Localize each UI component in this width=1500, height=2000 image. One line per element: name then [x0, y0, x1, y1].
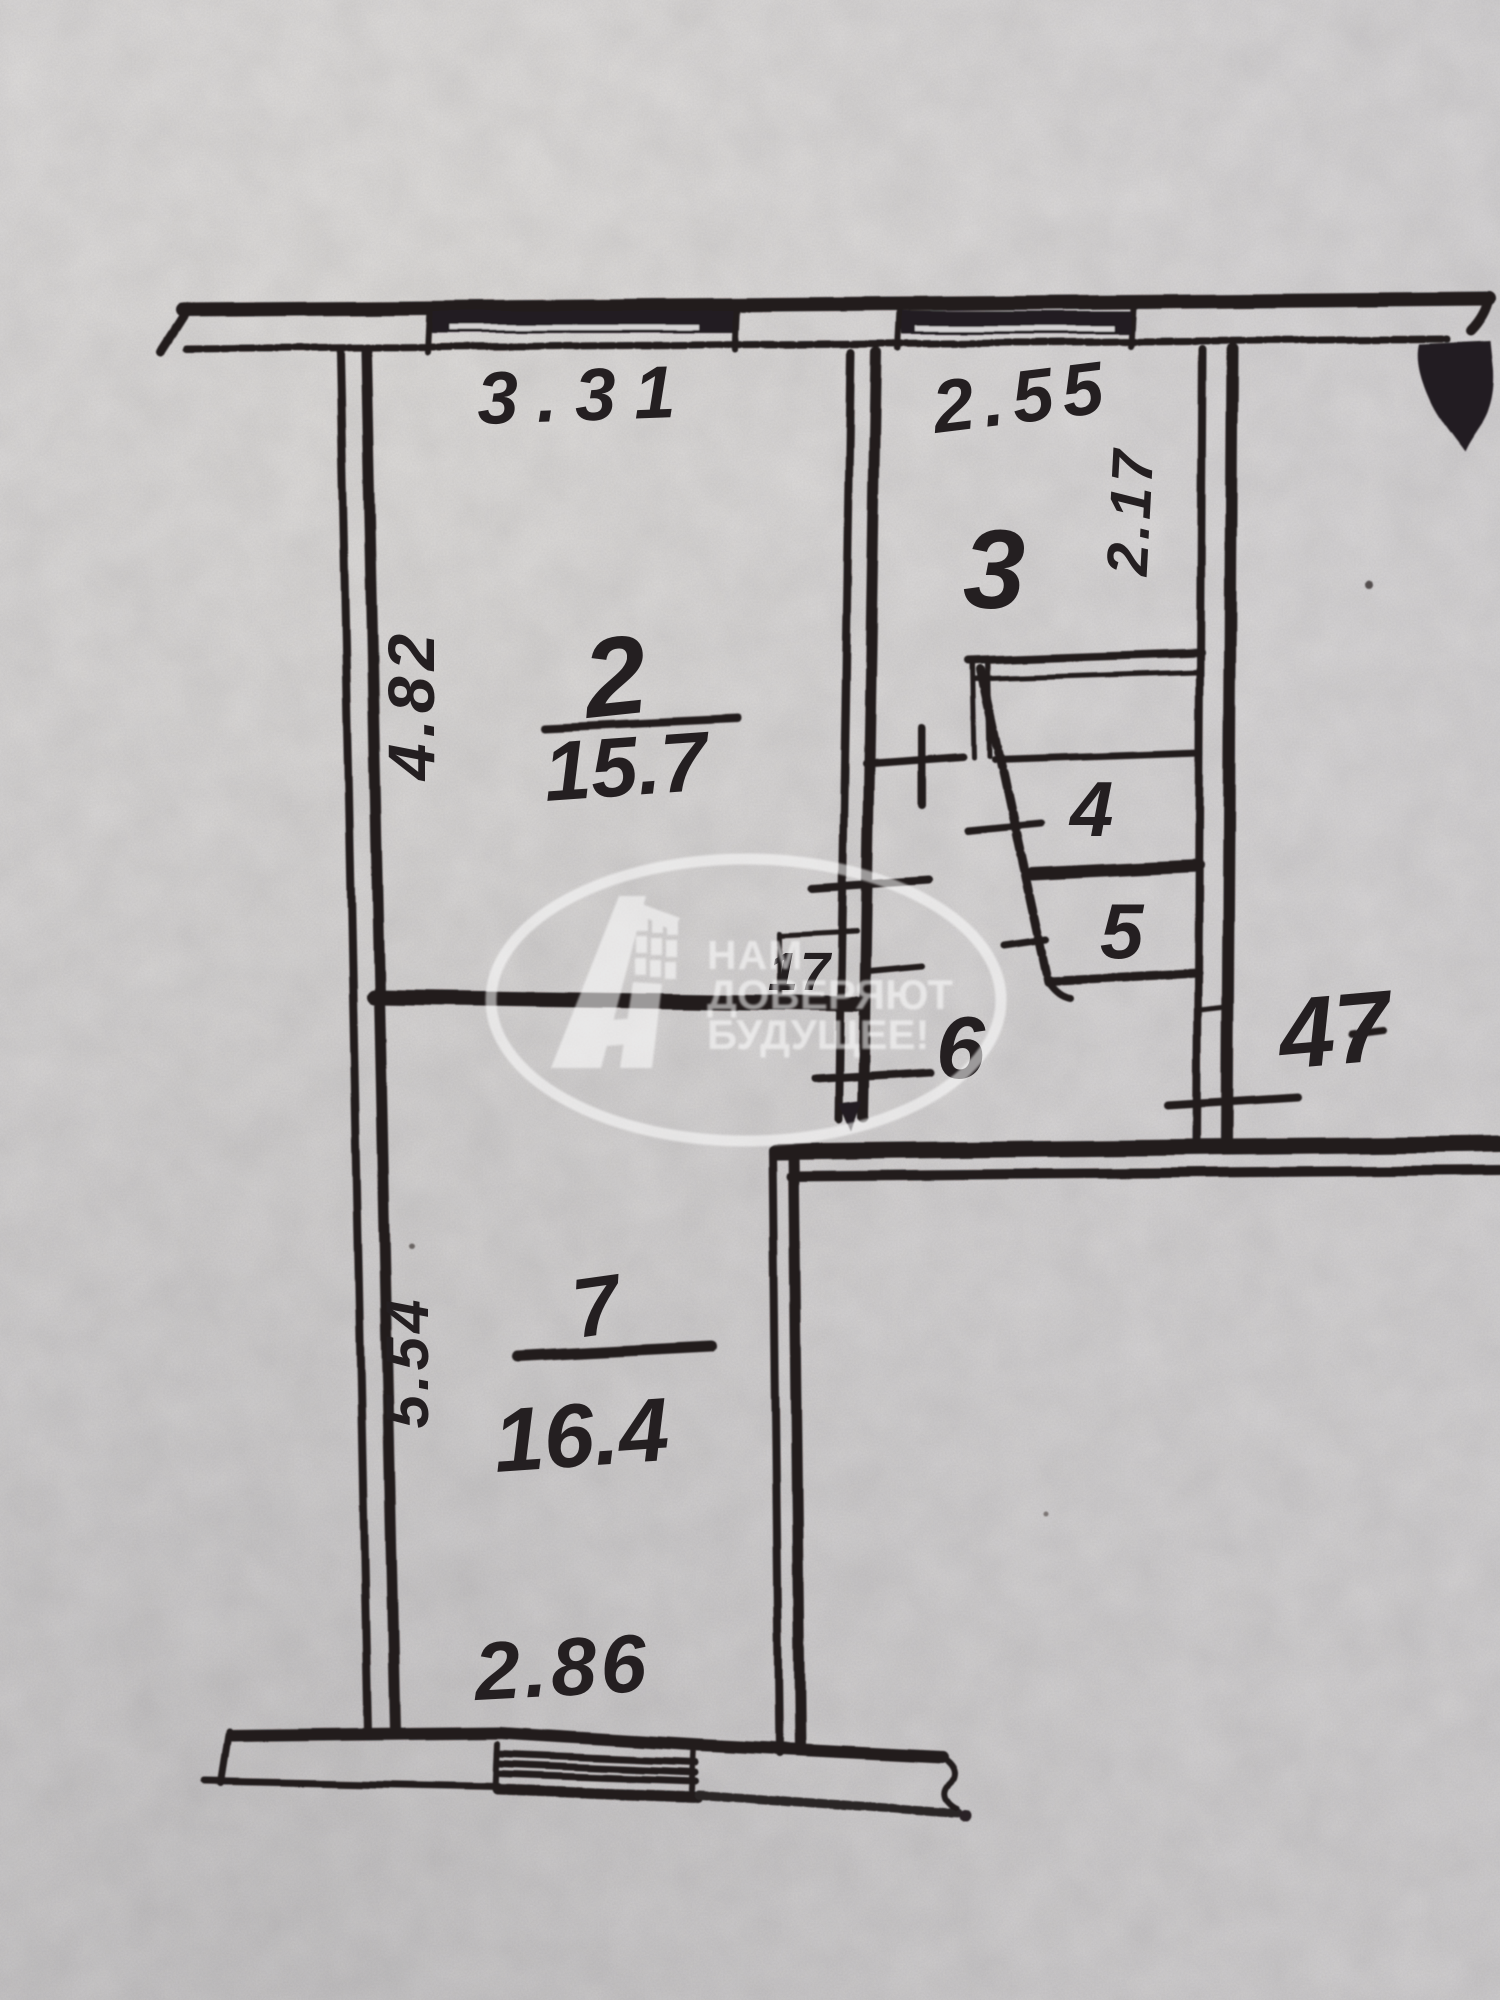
svg-text:15.7: 15.7 [541, 714, 714, 819]
svg-text:3.31: 3.31 [476, 350, 695, 440]
svg-text:47: 47 [1272, 969, 1399, 1091]
svg-text:4: 4 [1068, 765, 1113, 853]
svg-text:5: 5 [1100, 887, 1145, 975]
svg-text:2.86: 2.86 [470, 1618, 652, 1718]
svg-text:2.17: 2.17 [1095, 445, 1167, 578]
svg-text:БУДУЩЕЕ!: БУДУЩЕЕ! [707, 1011, 930, 1058]
svg-text:16.4: 16.4 [490, 1380, 672, 1492]
svg-text:3: 3 [963, 507, 1025, 632]
svg-text:4.82: 4.82 [374, 628, 448, 782]
svg-text:5.54: 5.54 [374, 1296, 441, 1429]
